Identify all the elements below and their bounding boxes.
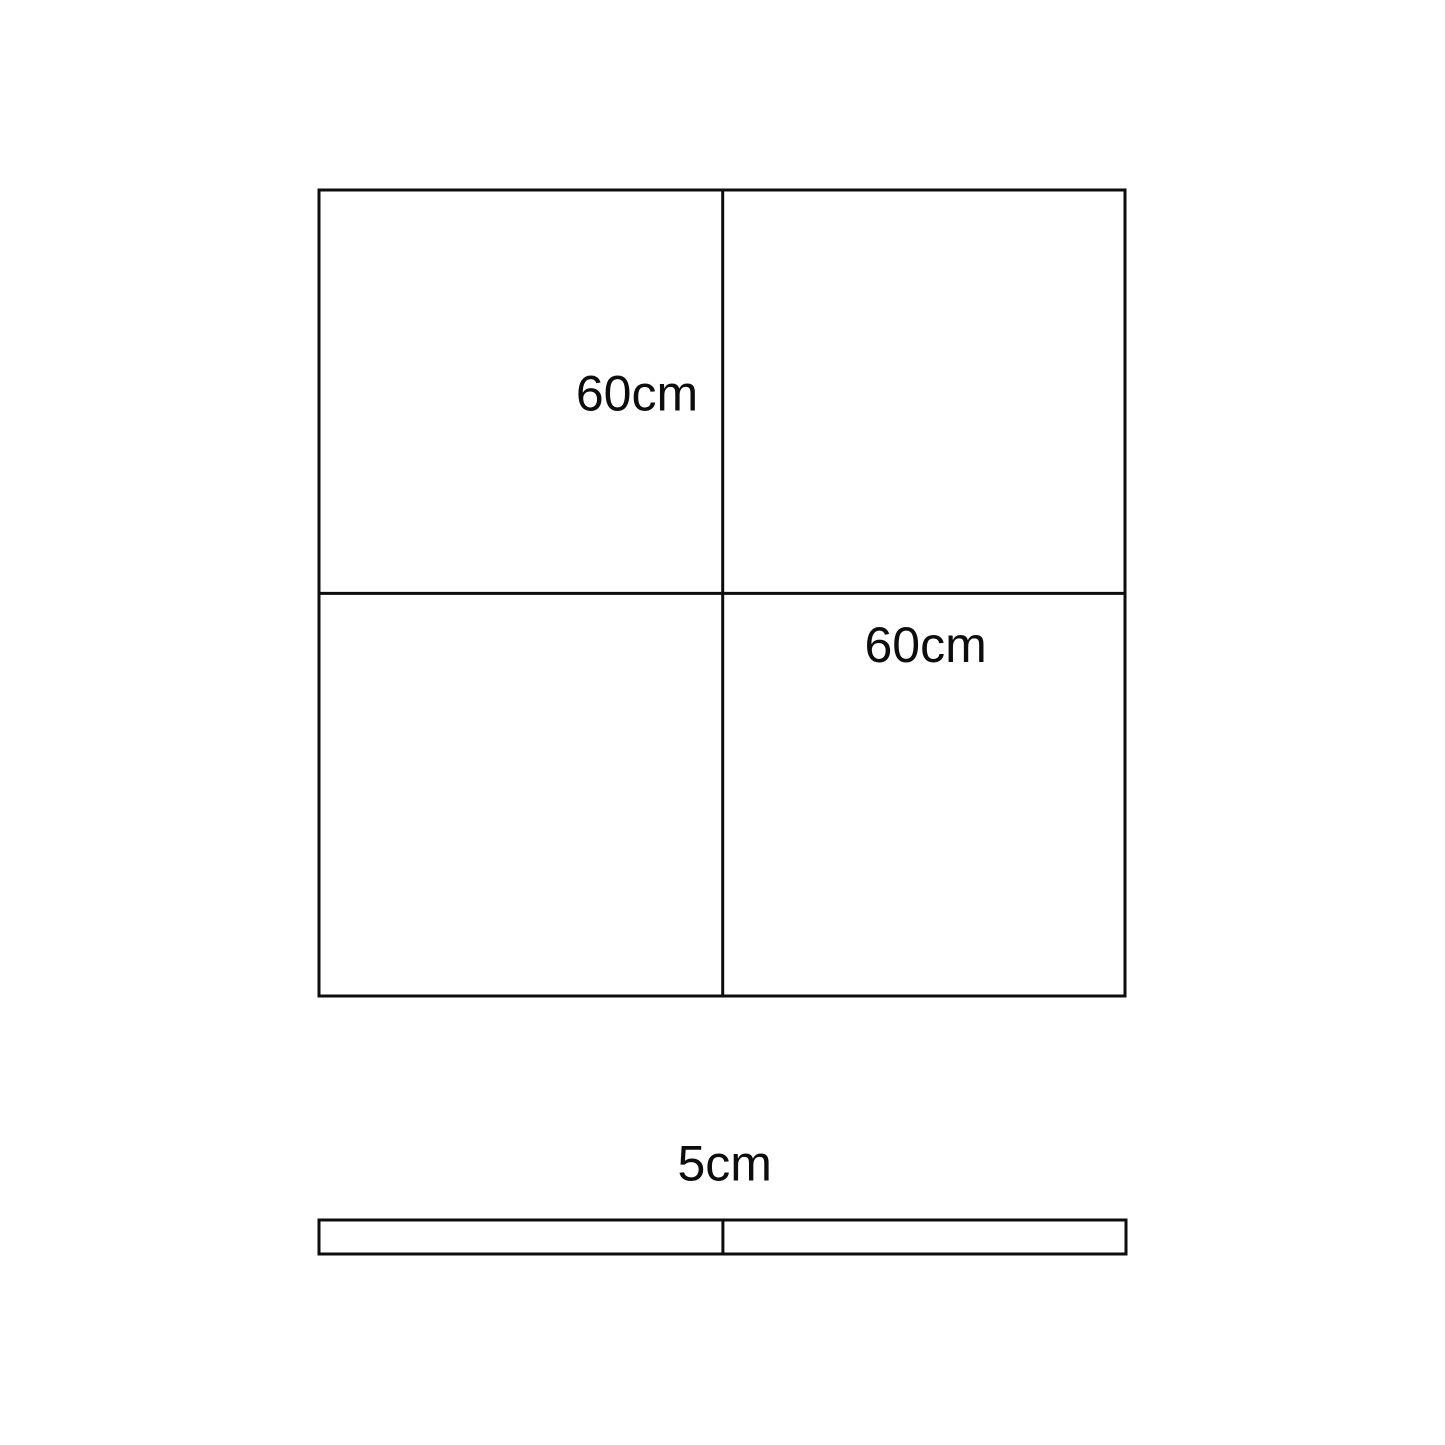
svg-text:60cm: 60cm <box>576 366 698 422</box>
svg-text:60cm: 60cm <box>864 617 986 673</box>
svg-text:5cm: 5cm <box>677 1136 771 1192</box>
